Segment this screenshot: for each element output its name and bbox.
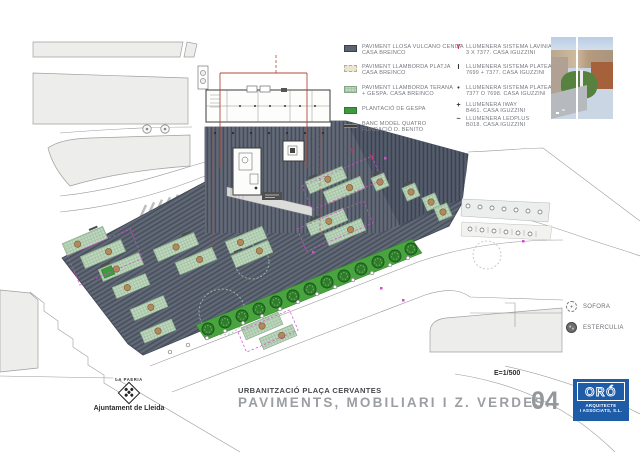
legend-item-terana: PAVIMENT LLAMBORDA TERANA+ GESPA. CASA B…	[344, 85, 453, 98]
legend-label: LLUMENERA SISTEMA PLATEA7377 O 7698. CAS…	[466, 85, 552, 98]
legend-line: FUNDACIÓ D. BENITO	[362, 127, 426, 133]
platea-symbol: I	[454, 64, 463, 71]
legend-item-platea-2: • LLUMENERA SISTEMA PLATEA7377 O 7698. C…	[454, 85, 552, 98]
legend-item-iway: + LLUMENERA IWAYB461. CASA IGUZZINI	[454, 102, 525, 115]
platea-dot-symbol: •	[454, 85, 463, 92]
lleida-emblem-icon	[118, 382, 141, 405]
legend-label: PAVIMENT LLOSA VULCANO CENIZACASA BREINC…	[362, 44, 464, 57]
photo-car	[562, 109, 565, 111]
oro-name-frame: ORÓ	[577, 382, 625, 401]
legend-item-ledplus: ~ LLUMENERA LEDPLUSB018. CASA IGUZZINI	[454, 116, 529, 129]
sheet-number: 04	[531, 387, 559, 416]
legend-item-lavinia: Y LLUMENERA SISTEMA LAVINIA3 X 7377. CAS…	[454, 44, 552, 57]
legend-label: LLUMENERA LEDPLUSB018. CASA IGUZZINI	[466, 116, 529, 129]
sofora-label: SOFORA	[583, 304, 610, 310]
legend-line: B461. CASA IGUZZINI	[466, 108, 525, 114]
oro-name: ORÓ	[585, 385, 617, 399]
legend-label: PAVIMENT LLAMBORDA PLATJACASA BREINCO	[362, 64, 451, 77]
esterculia-label: ESTERCULIA	[583, 325, 624, 331]
sofora-tree-icon	[566, 301, 577, 312]
photo-car	[556, 112, 559, 114]
legend-label: PLANTACIÓ DE GESPA	[362, 106, 426, 112]
legend-label: LLUMENERA SISTEMA PLATEA7699 + 7377. CAS…	[466, 64, 552, 77]
scale-note: E=1/500	[494, 370, 520, 377]
esterculia-tree-icon	[566, 322, 577, 333]
oro-sub-line: I ASSOCIATS, S.L.	[577, 408, 625, 413]
sheet-title: PAVIMENTS, MOBILIARI I Z. VERDES.	[238, 395, 552, 410]
oro-subtitle: ARQUITECTE I ASSOCIATS, S.L.	[577, 403, 625, 414]
location-aerial-photo	[551, 37, 613, 119]
photo-divider	[576, 37, 578, 119]
lavinia-symbol: Y	[454, 44, 463, 51]
swatch-vulcano-ceniza	[344, 45, 357, 52]
legend-label: LLUMENERA IWAYB461. CASA IGUZZINI	[466, 102, 525, 115]
legend-line: PLANTACIÓ DE GESPA	[362, 106, 426, 112]
oro-arquitecte-logo: ORÓ ARQUITECTE I ASSOCIATS, S.L.	[573, 379, 629, 421]
photo-sky	[551, 37, 613, 50]
swatch-banc	[344, 124, 357, 128]
legend-item-sofora: SOFORA	[566, 301, 610, 312]
legend-item-vulcano: PAVIMENT LLOSA VULCANO CENIZACASA BREINC…	[344, 44, 464, 57]
ajuntament-lleida-logo: LA PAERIA Ajuntament de Lleida	[93, 377, 165, 412]
legend-line: B018. CASA IGUZZINI	[466, 122, 529, 128]
legend-label: PAVIMENT LLAMBORDA TERANA+ GESPA. CASA B…	[362, 85, 453, 98]
legend-item-banc: BANC MODEL QUATROFUNDACIÓ D. BENITO	[344, 121, 426, 134]
legend-item-gespa: PLANTACIÓ DE GESPA	[344, 106, 426, 114]
swatch-llamborda-terana	[344, 86, 357, 93]
swatch-gespa	[344, 107, 357, 114]
legend-label: LLUMENERA SISTEMA LAVINIA3 X 7377. CASA …	[466, 44, 552, 57]
legend-line: 7699 + 7377. CASA IGUZZINI	[466, 70, 552, 76]
terrace-bands	[461, 199, 552, 240]
project-title: URBANITZACIÓ PLAÇA CERVANTES	[238, 386, 382, 395]
legend-line: CASA BREINCO	[362, 70, 451, 76]
building-top	[206, 86, 330, 122]
legend-item-platea-1: I LLUMENERA SISTEMA PLATEA7699 + 7377. C…	[454, 64, 552, 77]
legend-label: BANC MODEL QUATROFUNDACIÓ D. BENITO	[362, 121, 426, 134]
legend-item-platja: PAVIMENT LLAMBORDA PLATJACASA BREINCO	[344, 64, 451, 77]
swatch-llamborda-platja	[344, 65, 357, 72]
ledplus-symbol: ~	[454, 116, 463, 123]
legend-item-esterculia: ESTERCULIA	[566, 322, 624, 333]
legend-line: + GESPA. CASA BREINCO	[362, 91, 453, 97]
iway-symbol: +	[454, 102, 463, 109]
ajuntament-lleida-label: Ajuntament de Lleida	[93, 405, 165, 412]
legend-line: CASA BREINCO	[362, 50, 464, 56]
legend-line: 3 X 7377. CASA IGUZZINI	[466, 50, 552, 56]
drawing-sheet: PAVIMENT LLOSA VULCANO CENIZACASA BREINC…	[0, 0, 640, 452]
legend-line: 7377 O 7698. CASA IGUZZINI	[466, 91, 552, 97]
